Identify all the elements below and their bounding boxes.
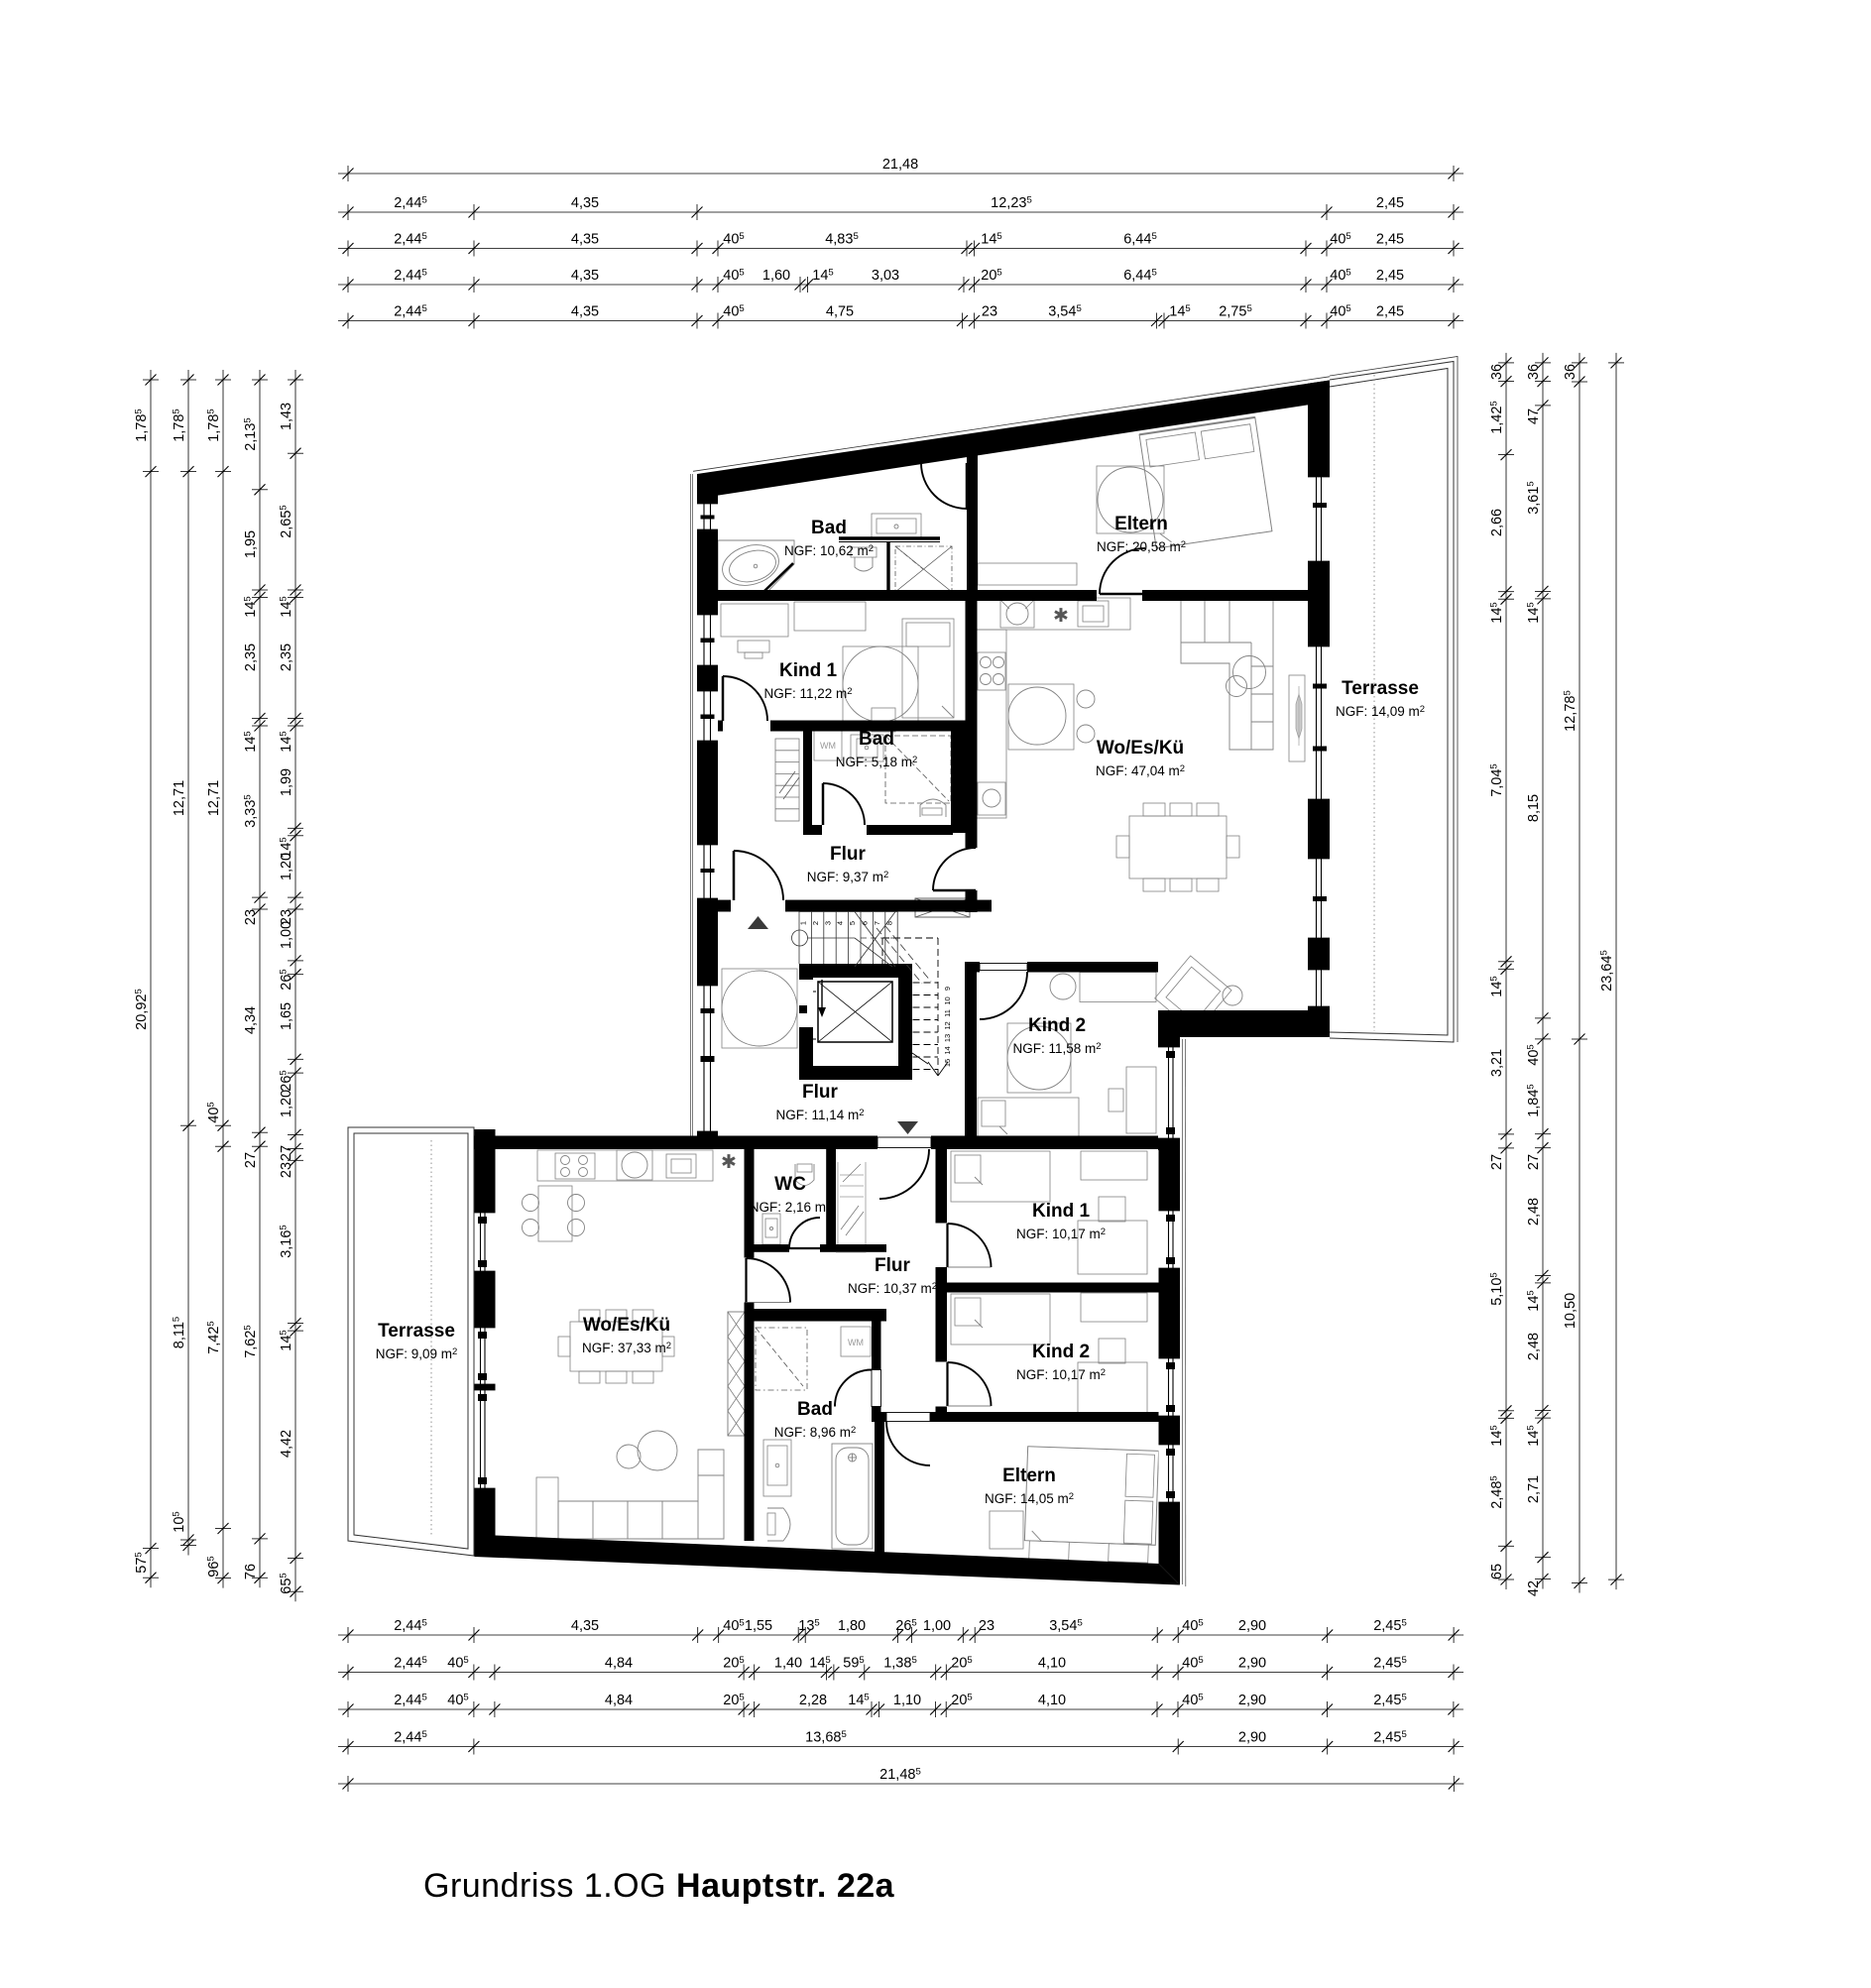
svg-text:NGF: 9,37 m2: NGF: 9,37 m2 — [807, 870, 889, 884]
svg-text:Eltern: Eltern — [1002, 1465, 1056, 1486]
svg-text:Wo/Es/Kü: Wo/Es/Kü — [583, 1315, 670, 1336]
svg-text:4,10: 4,10 — [1038, 1693, 1066, 1708]
svg-text:10: 10 — [943, 996, 952, 1004]
svg-text:WM: WM — [848, 1338, 864, 1347]
svg-text:21,485: 21,485 — [879, 1767, 921, 1784]
svg-text:Bad: Bad — [811, 518, 847, 538]
svg-text:Flur: Flur — [802, 1082, 838, 1103]
svg-text:✱: ✱ — [721, 1152, 737, 1173]
svg-text:23,645: 23,645 — [1599, 950, 1616, 992]
svg-text:1,65: 1,65 — [279, 1002, 294, 1030]
svg-text:1,00: 1,00 — [923, 1618, 951, 1634]
svg-text:Terrasse: Terrasse — [1342, 678, 1419, 699]
svg-text:2,90: 2,90 — [1238, 1618, 1266, 1634]
svg-text:1,40: 1,40 — [774, 1656, 802, 1672]
svg-text:9: 9 — [943, 987, 952, 991]
svg-text:12,785: 12,785 — [1563, 690, 1579, 732]
svg-text:NGF: 20,58 m2: NGF: 20,58 m2 — [1097, 539, 1186, 554]
svg-text:Kind 2: Kind 2 — [1028, 1015, 1086, 1036]
svg-text:Wo/Es/Kü: Wo/Es/Kü — [1097, 738, 1184, 759]
svg-text:2,90: 2,90 — [1238, 1693, 1266, 1708]
svg-text:Bad: Bad — [859, 729, 894, 750]
svg-text:4,84: 4,84 — [605, 1693, 633, 1708]
svg-text:12: 12 — [943, 1021, 952, 1029]
svg-text:NGF: 37,33 m2: NGF: 37,33 m2 — [582, 1341, 671, 1355]
svg-text:27: 27 — [279, 1145, 294, 1161]
svg-text:4,34: 4,34 — [243, 1006, 259, 1034]
svg-text:Kind 1: Kind 1 — [779, 660, 837, 681]
svg-text:2,45: 2,45 — [1376, 268, 1404, 284]
svg-text:42: 42 — [1526, 1580, 1542, 1596]
svg-text:47: 47 — [1526, 409, 1542, 424]
svg-text:12,71: 12,71 — [206, 780, 222, 816]
svg-text:2,35: 2,35 — [243, 643, 259, 671]
svg-text:NGF: 9,09 m2: NGF: 9,09 m2 — [376, 1346, 458, 1361]
svg-text:NGF: 8,96 m2: NGF: 8,96 m2 — [774, 1425, 857, 1440]
svg-text:Flur: Flur — [830, 844, 866, 865]
svg-text:4,10: 4,10 — [1038, 1656, 1066, 1672]
svg-text:23: 23 — [982, 304, 997, 320]
svg-text:2,71: 2,71 — [1526, 1475, 1542, 1503]
svg-text:NGF: 2,16 m2: NGF: 2,16 m2 — [750, 1200, 832, 1215]
svg-text:NGF: 10,62 m2: NGF: 10,62 m2 — [784, 543, 874, 558]
svg-text:1,95: 1,95 — [243, 530, 259, 558]
svg-text:13: 13 — [943, 1034, 952, 1042]
svg-text:1,60: 1,60 — [762, 268, 790, 284]
svg-text:14: 14 — [943, 1046, 952, 1054]
svg-text:2,90: 2,90 — [1238, 1730, 1266, 1746]
svg-text:8: 8 — [884, 921, 893, 925]
svg-text:2,28: 2,28 — [799, 1693, 827, 1708]
svg-text:NGF: 11,14 m2: NGF: 11,14 m2 — [775, 1108, 864, 1122]
svg-text:NGF: 14,05 m2: NGF: 14,05 m2 — [985, 1491, 1074, 1506]
svg-text:2: 2 — [811, 921, 820, 925]
svg-text:4,42: 4,42 — [279, 1430, 294, 1458]
svg-text:1,20: 1,20 — [279, 1090, 294, 1117]
svg-text:NGF: 5,18 m2: NGF: 5,18 m2 — [836, 755, 918, 769]
svg-text:2,45: 2,45 — [1376, 304, 1404, 320]
svg-text:21,48: 21,48 — [882, 157, 918, 173]
svg-text:8,15: 8,15 — [1526, 794, 1542, 822]
svg-text:2,45: 2,45 — [1376, 195, 1404, 211]
svg-text:1,99: 1,99 — [279, 768, 294, 796]
svg-text:NGF: 14,09 m2: NGF: 14,09 m2 — [1336, 704, 1425, 719]
svg-text:4,35: 4,35 — [571, 232, 599, 248]
svg-text:Terrasse: Terrasse — [378, 1321, 455, 1342]
svg-text:✱: ✱ — [1053, 606, 1069, 627]
svg-text:NGF: 10,37 m2: NGF: 10,37 m2 — [848, 1281, 937, 1296]
svg-text:10,50: 10,50 — [1563, 1293, 1579, 1329]
svg-text:Kind 1: Kind 1 — [1032, 1201, 1090, 1222]
svg-text:Flur: Flur — [875, 1255, 910, 1276]
svg-text:Kind 2: Kind 2 — [1032, 1342, 1090, 1362]
svg-text:6: 6 — [861, 921, 870, 925]
svg-text:11: 11 — [943, 1009, 952, 1017]
svg-text:WC: WC — [774, 1174, 806, 1195]
svg-text:4,35: 4,35 — [571, 195, 599, 211]
svg-text:1,43: 1,43 — [279, 403, 294, 430]
svg-text:3,21: 3,21 — [1489, 1049, 1505, 1077]
svg-text:4,35: 4,35 — [571, 268, 599, 284]
svg-text:1,55: 1,55 — [745, 1618, 772, 1634]
svg-text:NGF: 11,58 m2: NGF: 11,58 m2 — [1012, 1041, 1101, 1056]
svg-text:4,84: 4,84 — [605, 1656, 633, 1672]
svg-text:NGF: 10,17 m2: NGF: 10,17 m2 — [1016, 1227, 1106, 1241]
svg-text:2,48: 2,48 — [1526, 1198, 1542, 1226]
svg-text:2,90: 2,90 — [1238, 1656, 1266, 1672]
svg-text:23: 23 — [243, 909, 259, 925]
svg-text:Grundriss 1.OG Hauptstr. 22a: Grundriss 1.OG Hauptstr. 22a — [423, 1867, 895, 1905]
svg-text:3,03: 3,03 — [872, 268, 899, 284]
svg-text:Eltern: Eltern — [1114, 514, 1168, 534]
svg-text:4: 4 — [836, 921, 845, 925]
svg-text:5: 5 — [848, 921, 857, 925]
svg-text:36: 36 — [1489, 364, 1505, 380]
svg-text:NGF: 11,22 m2: NGF: 11,22 m2 — [763, 686, 852, 701]
svg-text:20,925: 20,925 — [134, 989, 151, 1030]
svg-text:1,00: 1,00 — [279, 921, 294, 949]
svg-text:12,235: 12,235 — [991, 195, 1032, 212]
svg-text:WM: WM — [820, 741, 836, 751]
svg-text:27: 27 — [243, 1152, 259, 1168]
svg-text:NGF: 47,04 m2: NGF: 47,04 m2 — [1096, 763, 1185, 778]
svg-text:36: 36 — [1526, 364, 1542, 380]
svg-text:4,75: 4,75 — [826, 304, 854, 320]
svg-text:7: 7 — [873, 921, 881, 925]
svg-text:23: 23 — [979, 1618, 994, 1634]
svg-text:2,35: 2,35 — [279, 643, 294, 671]
svg-text:76: 76 — [243, 1564, 259, 1579]
svg-text:2,45: 2,45 — [1376, 232, 1404, 248]
svg-text:13,685: 13,685 — [805, 1729, 847, 1746]
svg-text:27: 27 — [1526, 1154, 1542, 1170]
svg-text:23: 23 — [279, 1162, 294, 1178]
svg-text:Bad: Bad — [797, 1399, 833, 1420]
svg-text:1: 1 — [799, 921, 808, 925]
svg-text:27: 27 — [1489, 1154, 1505, 1170]
svg-text:4,35: 4,35 — [571, 304, 599, 320]
svg-text:2,48: 2,48 — [1526, 1333, 1542, 1360]
svg-text:1,10: 1,10 — [893, 1693, 921, 1708]
svg-text:65: 65 — [1489, 1564, 1505, 1579]
svg-text:1,80: 1,80 — [838, 1618, 866, 1634]
svg-text:4,35: 4,35 — [571, 1618, 599, 1634]
svg-text:12,71: 12,71 — [172, 780, 187, 816]
svg-text:3: 3 — [823, 921, 832, 925]
svg-text:NGF: 10,17 m2: NGF: 10,17 m2 — [1016, 1367, 1106, 1382]
svg-text:1,20: 1,20 — [279, 853, 294, 880]
svg-text:2,66: 2,66 — [1489, 509, 1505, 536]
svg-text:36: 36 — [1563, 364, 1579, 380]
